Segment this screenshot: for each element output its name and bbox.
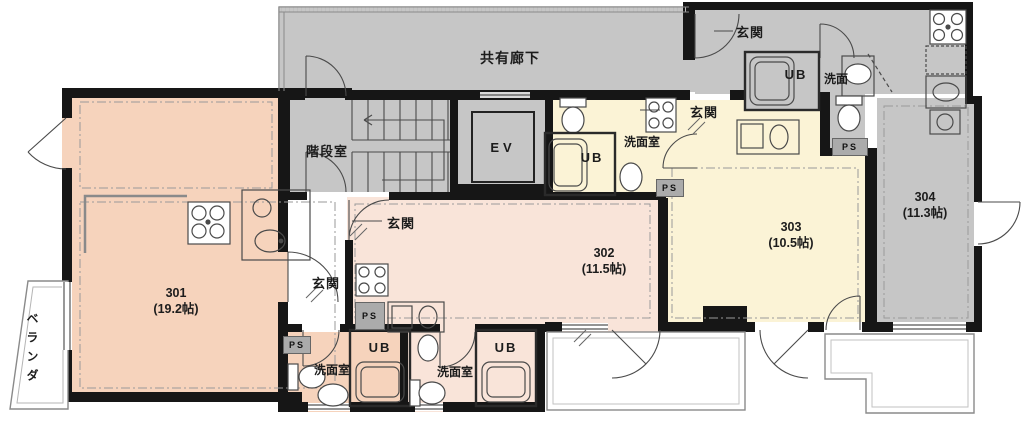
room-303-area: (10.5帖): [733, 236, 849, 252]
washroom-label-301: 洗面室: [305, 361, 359, 378]
entrance-label-302: 玄関: [384, 213, 418, 232]
basin-label-304: 洗面: [816, 70, 856, 87]
room-304-area: (11.3帖): [867, 206, 983, 222]
ub-label-303: UB: [574, 150, 610, 165]
room-302-number: 302: [546, 246, 662, 262]
ps-label: PS: [662, 183, 678, 193]
room-302-area: (11.5帖): [546, 262, 662, 278]
veranda-label: ベランダ: [24, 300, 41, 400]
ub-label-304: UB: [778, 67, 814, 82]
pipe-space-303: PS: [656, 179, 684, 197]
corridor-label: 共有廊下: [455, 48, 565, 68]
balcony-left: [547, 332, 745, 410]
pipe-space-301: PS: [283, 336, 311, 354]
entrance-label-304: 玄関: [733, 22, 767, 41]
entrance-label-303: 玄関: [687, 102, 721, 121]
room-301-area: (19.2帖): [118, 302, 234, 318]
ps-label: PS: [842, 142, 858, 152]
room-304-number: 304: [867, 190, 983, 206]
ps-label: PS: [289, 340, 305, 350]
pipe-space-302: PS: [355, 302, 385, 330]
elevator-label: EV: [473, 140, 533, 155]
kitchen-301: [85, 190, 310, 260]
room-301-label: 301 (19.2帖): [118, 286, 234, 317]
washroom-label-303: 洗面室: [615, 133, 669, 150]
room-302-label: 302 (11.5帖): [546, 246, 662, 277]
floor-plan: PS PS PS PS 共有廊下 階段室 EV 玄関 玄関 玄関 玄関 UB U…: [0, 0, 1024, 423]
balcony-right: [825, 334, 974, 413]
ub-label-302: UB: [488, 340, 524, 355]
ps-label: PS: [362, 311, 378, 321]
stairs: [352, 100, 450, 192]
washroom-label-302: 洗面室: [428, 363, 482, 380]
room-304-label: 304 (11.3帖): [867, 190, 983, 221]
ub-label-301: UB: [362, 340, 398, 355]
pipe-space-304: PS: [832, 138, 868, 156]
entrance-label-301: 玄関: [309, 273, 343, 292]
stairwell-label: 階段室: [292, 141, 362, 160]
room-303-label: 303 (10.5帖): [733, 220, 849, 251]
room-303-number: 303: [733, 220, 849, 236]
room-301-number: 301: [118, 286, 234, 302]
